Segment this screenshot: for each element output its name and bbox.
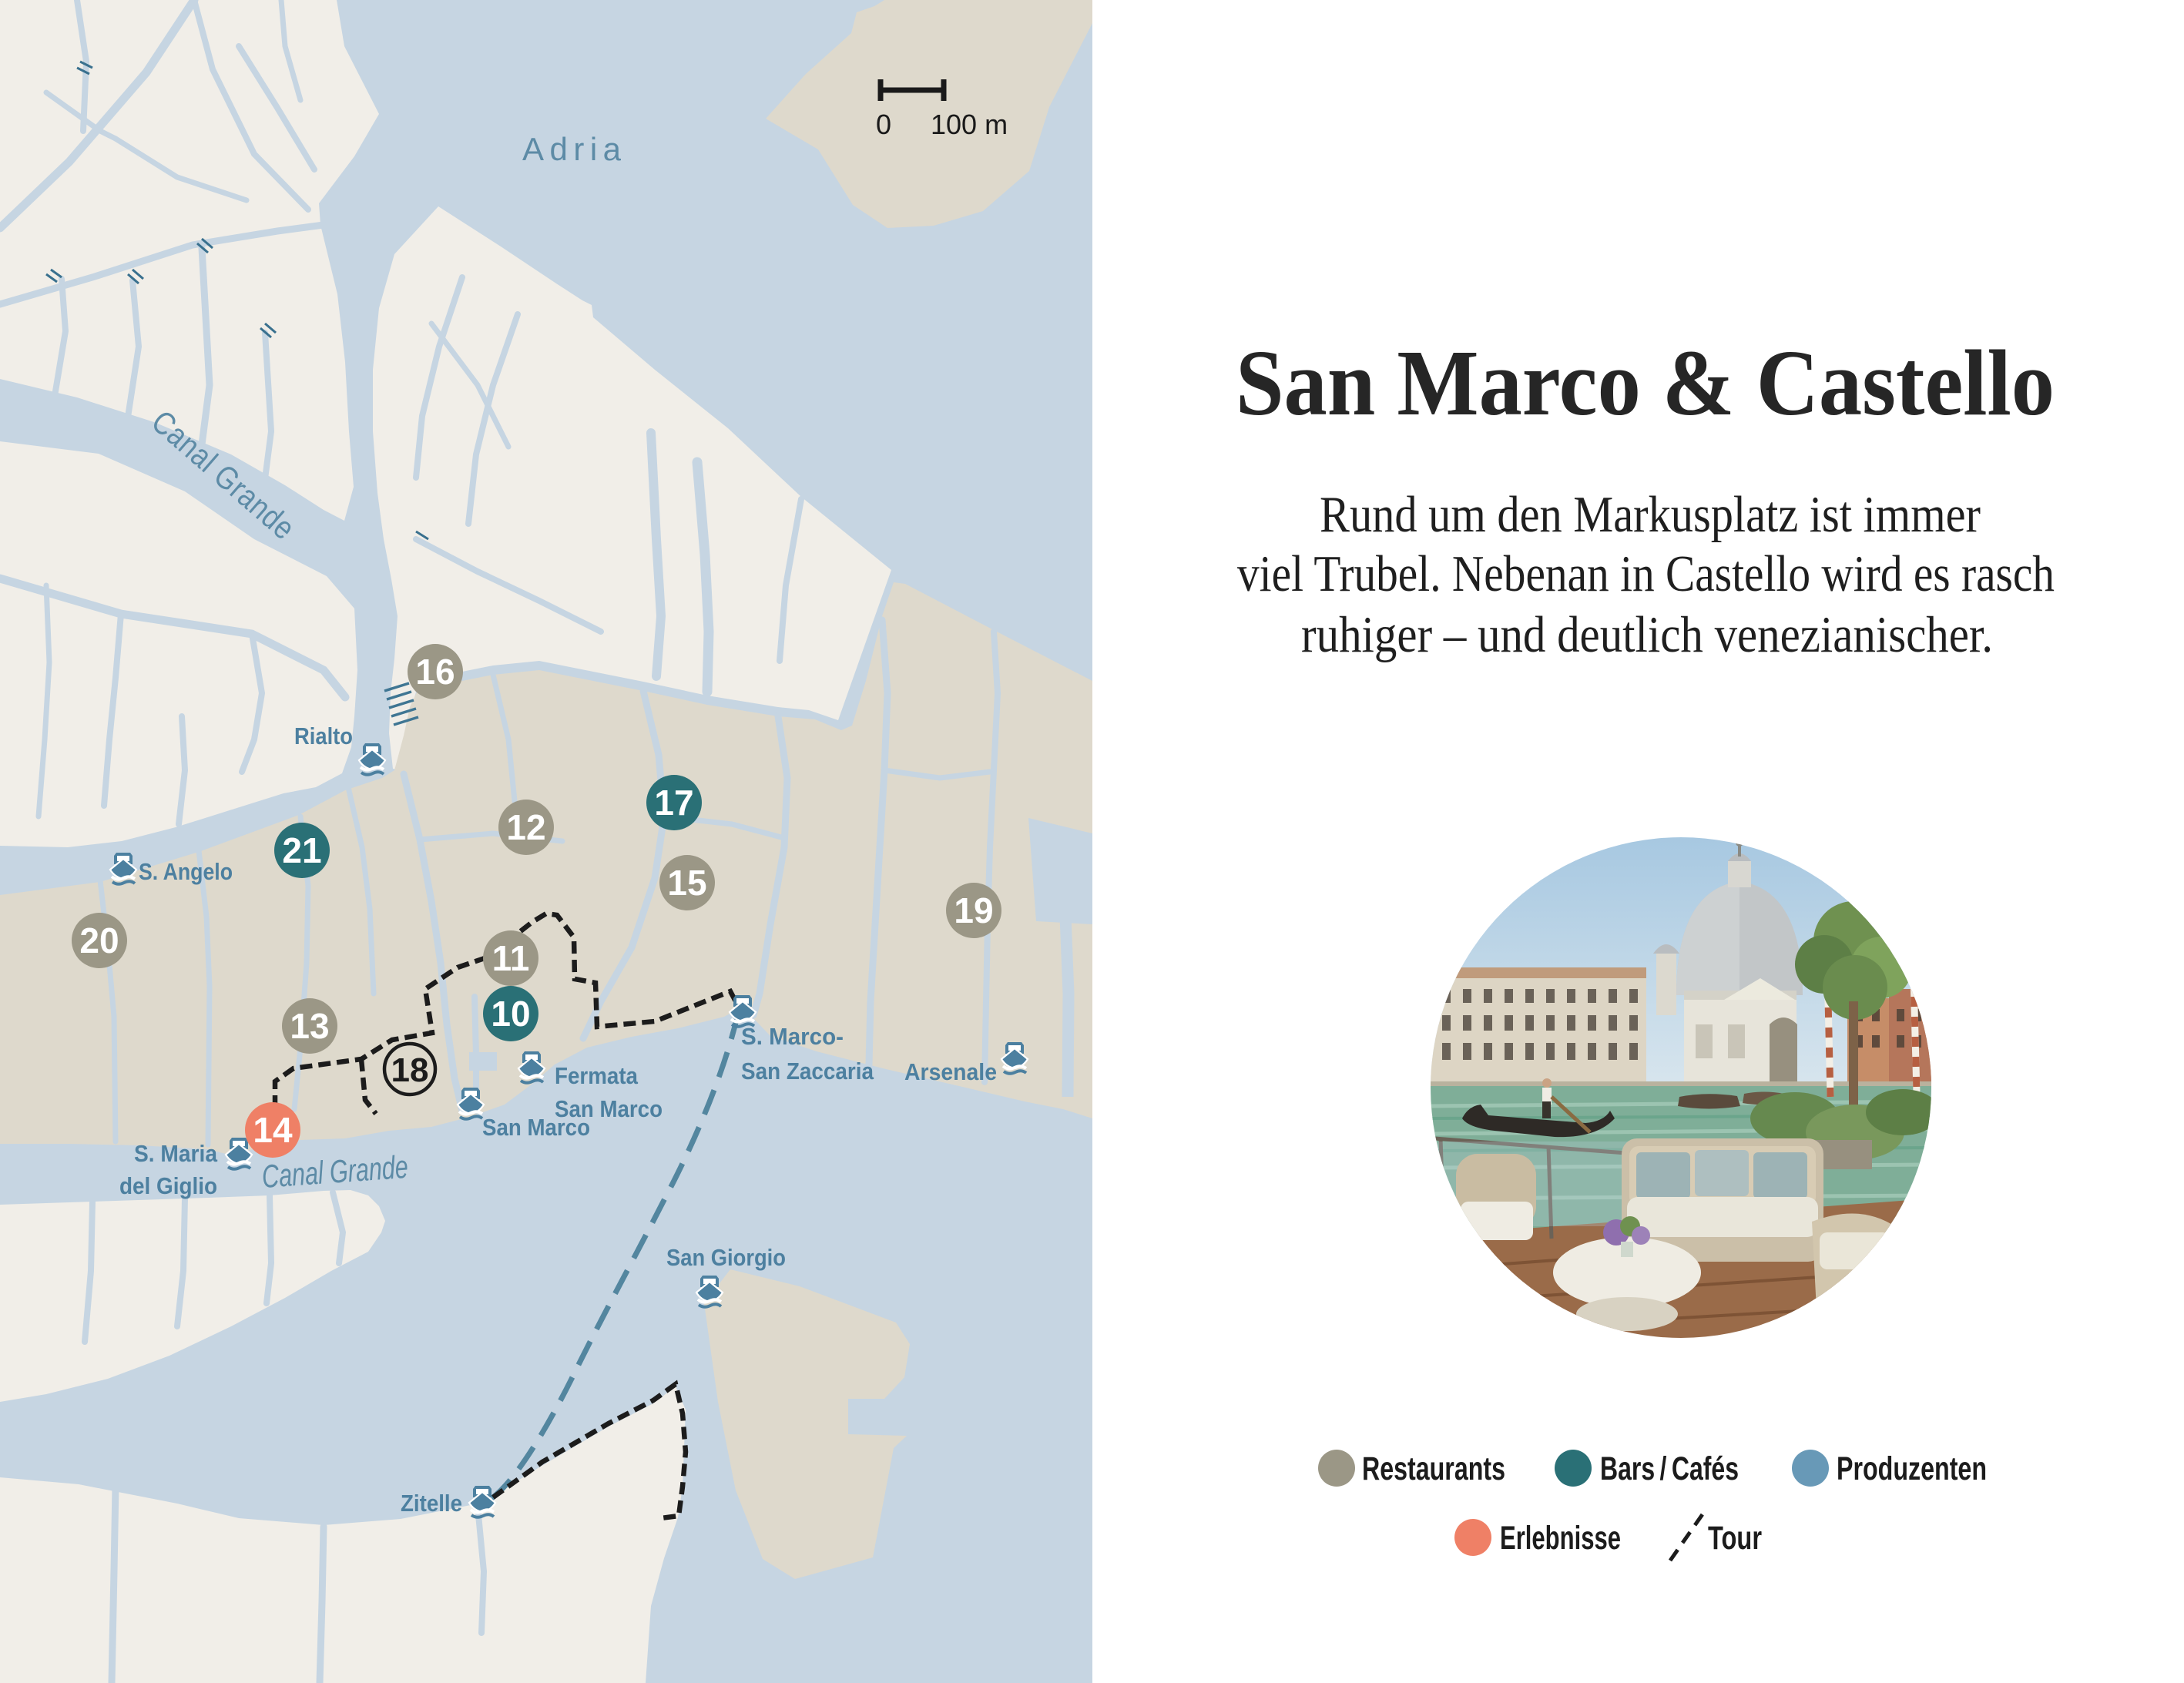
- svg-text:S. Maria: S. Maria: [134, 1140, 218, 1167]
- svg-text:Produzenten: Produzenten: [1837, 1450, 1987, 1487]
- svg-text:ruhiger – und deutlich venezia: ruhiger – und deutlich venezianischer.: [1301, 606, 1993, 663]
- svg-text:San Marco: San Marco: [482, 1114, 590, 1141]
- svg-text:12: 12: [506, 807, 545, 847]
- svg-text:Tour: Tour: [1708, 1520, 1762, 1557]
- svg-text:San Zaccaria: San Zaccaria: [741, 1058, 874, 1085]
- svg-text:Adria: Adria: [522, 131, 627, 167]
- svg-text:14: 14: [253, 1110, 293, 1150]
- svg-text:11: 11: [492, 938, 530, 978]
- svg-text:del Giglio: del Giglio: [119, 1172, 217, 1199]
- svg-text:13: 13: [290, 1006, 329, 1046]
- svg-text:Erlebnisse: Erlebnisse: [1500, 1520, 1621, 1557]
- svg-text:San Marco & Castello: San Marco & Castello: [1236, 331, 2055, 435]
- svg-text:17: 17: [654, 783, 693, 823]
- svg-text:San Giorgio: San Giorgio: [666, 1244, 786, 1271]
- svg-text:10: 10: [491, 994, 530, 1034]
- svg-text:Arsenale: Arsenale: [904, 1058, 997, 1085]
- svg-text:Zitelle: Zitelle: [401, 1490, 462, 1517]
- svg-text:Restaurants: Restaurants: [1362, 1450, 1505, 1487]
- svg-text:20: 20: [79, 920, 119, 961]
- svg-text:21: 21: [282, 830, 321, 870]
- svg-text:Fermata: Fermata: [555, 1062, 639, 1089]
- svg-text:Bars / Cafés: Bars / Cafés: [1600, 1450, 1739, 1487]
- svg-text:18: 18: [391, 1051, 429, 1089]
- svg-text:0: 0: [876, 109, 891, 140]
- svg-text:100 m: 100 m: [931, 109, 1008, 140]
- svg-text:Rund um den Markusplatz ist im: Rund um den Markusplatz ist immer: [1320, 486, 1981, 543]
- svg-text:S. Marco-: S. Marco-: [741, 1023, 844, 1050]
- svg-text:viel Trubel. Nebenan in Castel: viel Trubel. Nebenan in Castello wird es…: [1237, 545, 2055, 602]
- svg-text:19: 19: [954, 890, 993, 930]
- svg-text:Rialto: Rialto: [294, 722, 353, 749]
- svg-text:S. Angelo: S. Angelo: [139, 858, 233, 885]
- svg-text:15: 15: [667, 863, 706, 903]
- svg-text:16: 16: [415, 652, 455, 692]
